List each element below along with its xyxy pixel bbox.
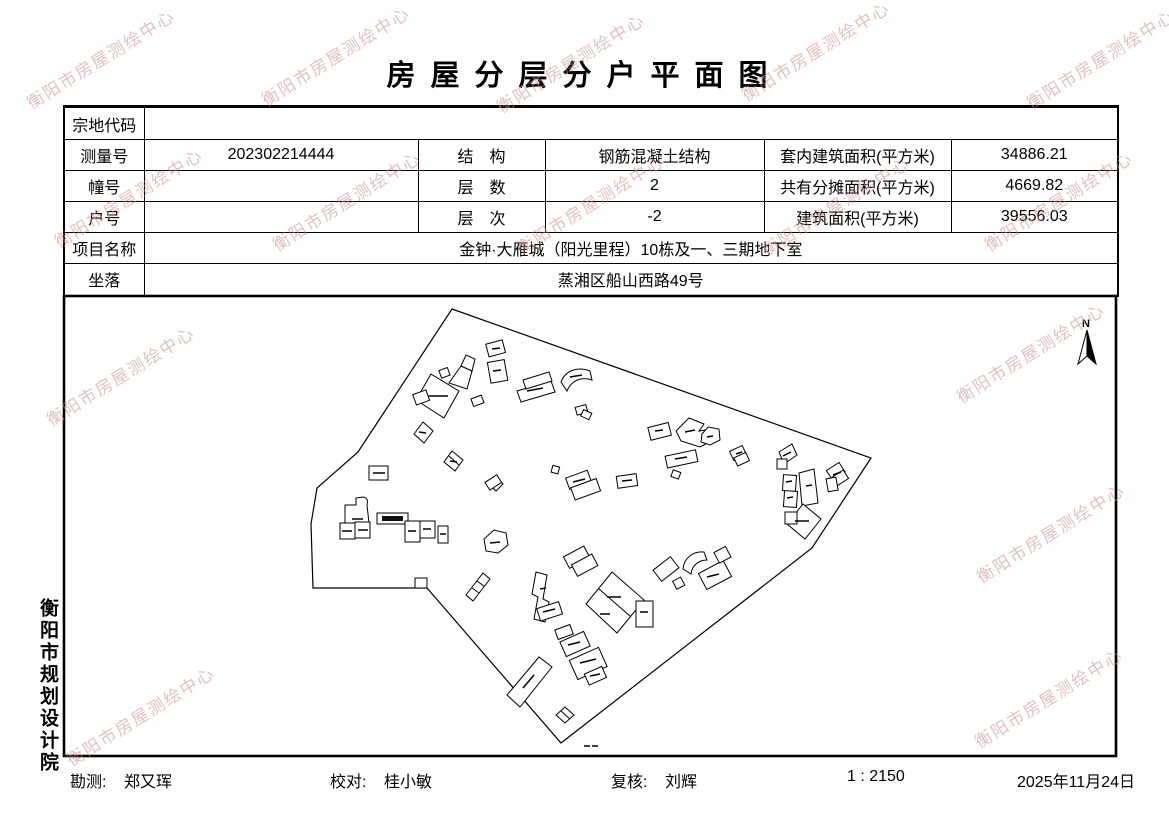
survey-value: 郑又珲: [124, 768, 172, 792]
check-label: 校对:: [330, 768, 366, 792]
survey-label: 勘测:: [70, 768, 106, 792]
date-value: 2025年11月24日: [1017, 768, 1135, 792]
north-arrow-icon: N: [1078, 318, 1096, 364]
review-value: 刘辉: [665, 768, 697, 792]
building-label-marks: [342, 348, 841, 746]
map-frame: [64, 296, 1116, 756]
review-label: 复核:: [611, 768, 647, 792]
building-outlines: [340, 340, 849, 723]
boundary-bump: [415, 578, 427, 588]
institute-name-vertical: 衡阳市规划设计院: [34, 598, 61, 774]
site-plan: N: [0, 0, 1169, 827]
check-value: 桂小敏: [384, 768, 432, 792]
north-label: N: [1082, 318, 1090, 330]
document-page: 衡阳市房屋测绘中心 衡阳市房屋测绘中心 衡阳市房屋测绘中心 衡阳市房屋测绘中心 …: [0, 0, 1169, 827]
map-scale: 1 : 2150: [847, 768, 905, 786]
